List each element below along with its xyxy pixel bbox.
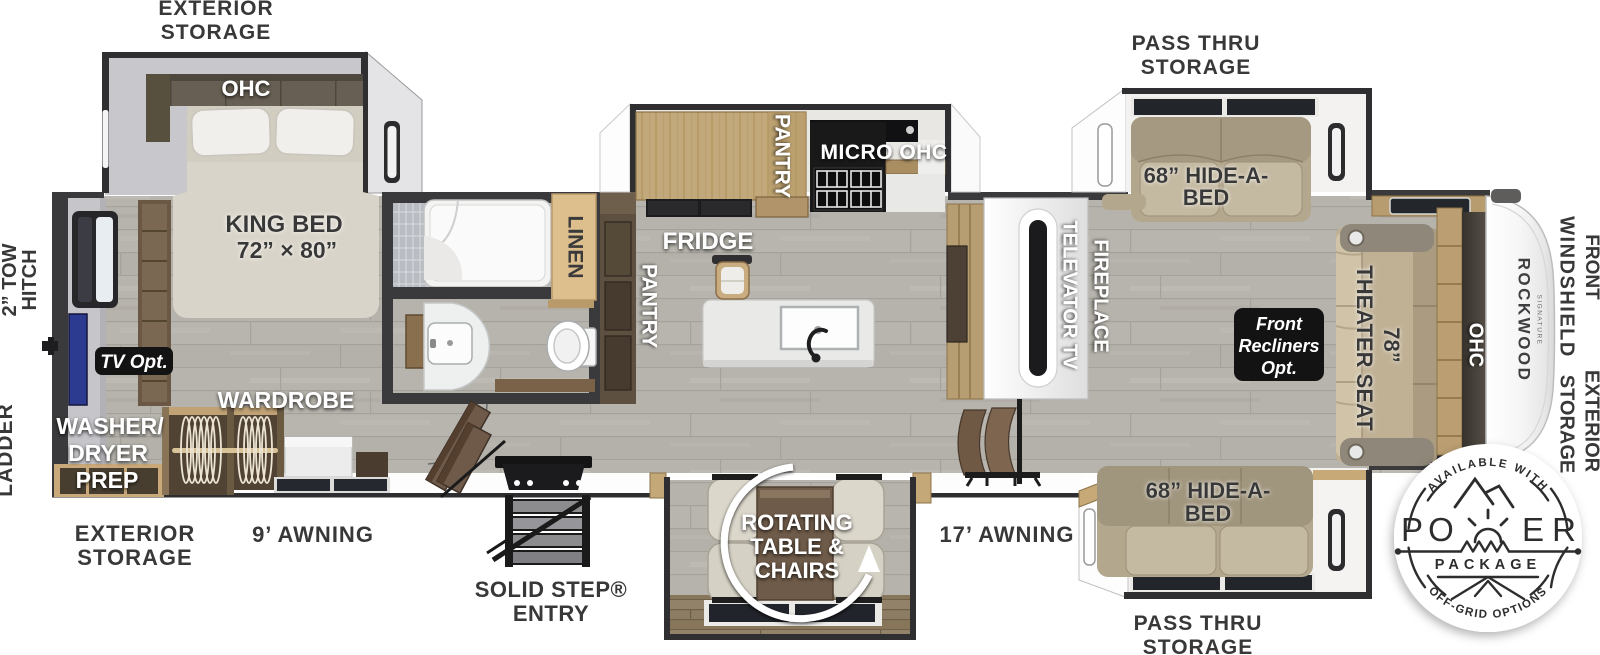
svg-text:STORAGE: STORAGE xyxy=(161,21,271,44)
svg-text:OHC: OHC xyxy=(222,76,271,101)
svg-text:FRONT: FRONT xyxy=(1581,234,1600,300)
svg-text:ROCKWOOD: ROCKWOOD xyxy=(1515,258,1534,383)
svg-text:EXTERIOR: EXTERIOR xyxy=(158,0,273,20)
svg-text:STORAGE: STORAGE xyxy=(1143,636,1253,655)
svg-text:TABLE &: TABLE & xyxy=(750,534,844,559)
svg-text:O: O xyxy=(1428,511,1454,548)
svg-text:R: R xyxy=(1552,511,1576,548)
svg-text:Front: Front xyxy=(1256,314,1303,334)
svg-text:FRIDGE: FRIDGE xyxy=(663,228,754,255)
svg-text:MICRO OHC: MICRO OHC xyxy=(821,141,948,164)
svg-text:STORAGE: STORAGE xyxy=(77,545,192,570)
svg-text:PANTRY: PANTRY xyxy=(637,264,660,348)
svg-text:Opt.: Opt. xyxy=(1261,358,1297,378)
svg-text:BED: BED xyxy=(1185,501,1231,526)
svg-text:LINEN: LINEN xyxy=(563,216,586,279)
svg-text:PANTRY: PANTRY xyxy=(770,114,793,198)
svg-text:EXTERIOR: EXTERIOR xyxy=(75,521,195,546)
svg-text:THEATER SEAT: THEATER SEAT xyxy=(1352,265,1377,431)
svg-text:WASHER/: WASHER/ xyxy=(56,413,164,439)
svg-text:FIREPLACE: FIREPLACE xyxy=(1090,239,1112,352)
svg-text:E: E xyxy=(1522,511,1544,548)
svg-text:78”: 78” xyxy=(1379,327,1404,362)
svg-text:OHC: OHC xyxy=(1465,323,1487,367)
svg-text:PACKAGE: PACKAGE xyxy=(1435,557,1541,573)
svg-text:STORAGE: STORAGE xyxy=(1556,375,1578,474)
svg-text:9’ AWNING: 9’ AWNING xyxy=(252,522,374,547)
svg-text:KING BED: KING BED xyxy=(225,211,342,238)
svg-text:SIGNATURE: SIGNATURE xyxy=(1535,295,1542,346)
svg-text:WINDSHIELD: WINDSHIELD xyxy=(1556,216,1578,358)
svg-text:PASS THRU: PASS THRU xyxy=(1134,612,1263,635)
svg-text:68” HIDE-A-: 68” HIDE-A- xyxy=(1146,478,1271,503)
svg-text:BED: BED xyxy=(1183,185,1229,210)
svg-text:Recliners: Recliners xyxy=(1238,336,1319,356)
svg-text:HITCH: HITCH xyxy=(19,249,41,310)
svg-text:TV Opt.: TV Opt. xyxy=(100,352,168,373)
svg-text:CHAIRS: CHAIRS xyxy=(755,558,839,583)
svg-text:LADDER: LADDER xyxy=(0,403,17,497)
svg-text:TELEVATOR TV: TELEVATOR TV xyxy=(1059,221,1081,371)
svg-text:P: P xyxy=(1401,511,1423,548)
svg-text:PASS THRU: PASS THRU xyxy=(1132,32,1261,55)
svg-text:72” × 80”: 72” × 80” xyxy=(237,237,337,263)
svg-text:WARDROBE: WARDROBE xyxy=(218,387,355,413)
svg-text:17’ AWNING: 17’ AWNING xyxy=(939,522,1074,547)
svg-text:PREP: PREP xyxy=(76,467,139,493)
svg-text:STORAGE: STORAGE xyxy=(1141,56,1251,79)
svg-text:ENTRY: ENTRY xyxy=(513,601,589,626)
svg-text:SOLID STEP®: SOLID STEP® xyxy=(475,577,628,602)
svg-text:EXTERIOR: EXTERIOR xyxy=(1581,370,1600,473)
svg-text:ROTATING: ROTATING xyxy=(741,510,853,535)
svg-text:2” TOW: 2” TOW xyxy=(0,243,21,316)
svg-text:DRYER: DRYER xyxy=(68,440,148,466)
